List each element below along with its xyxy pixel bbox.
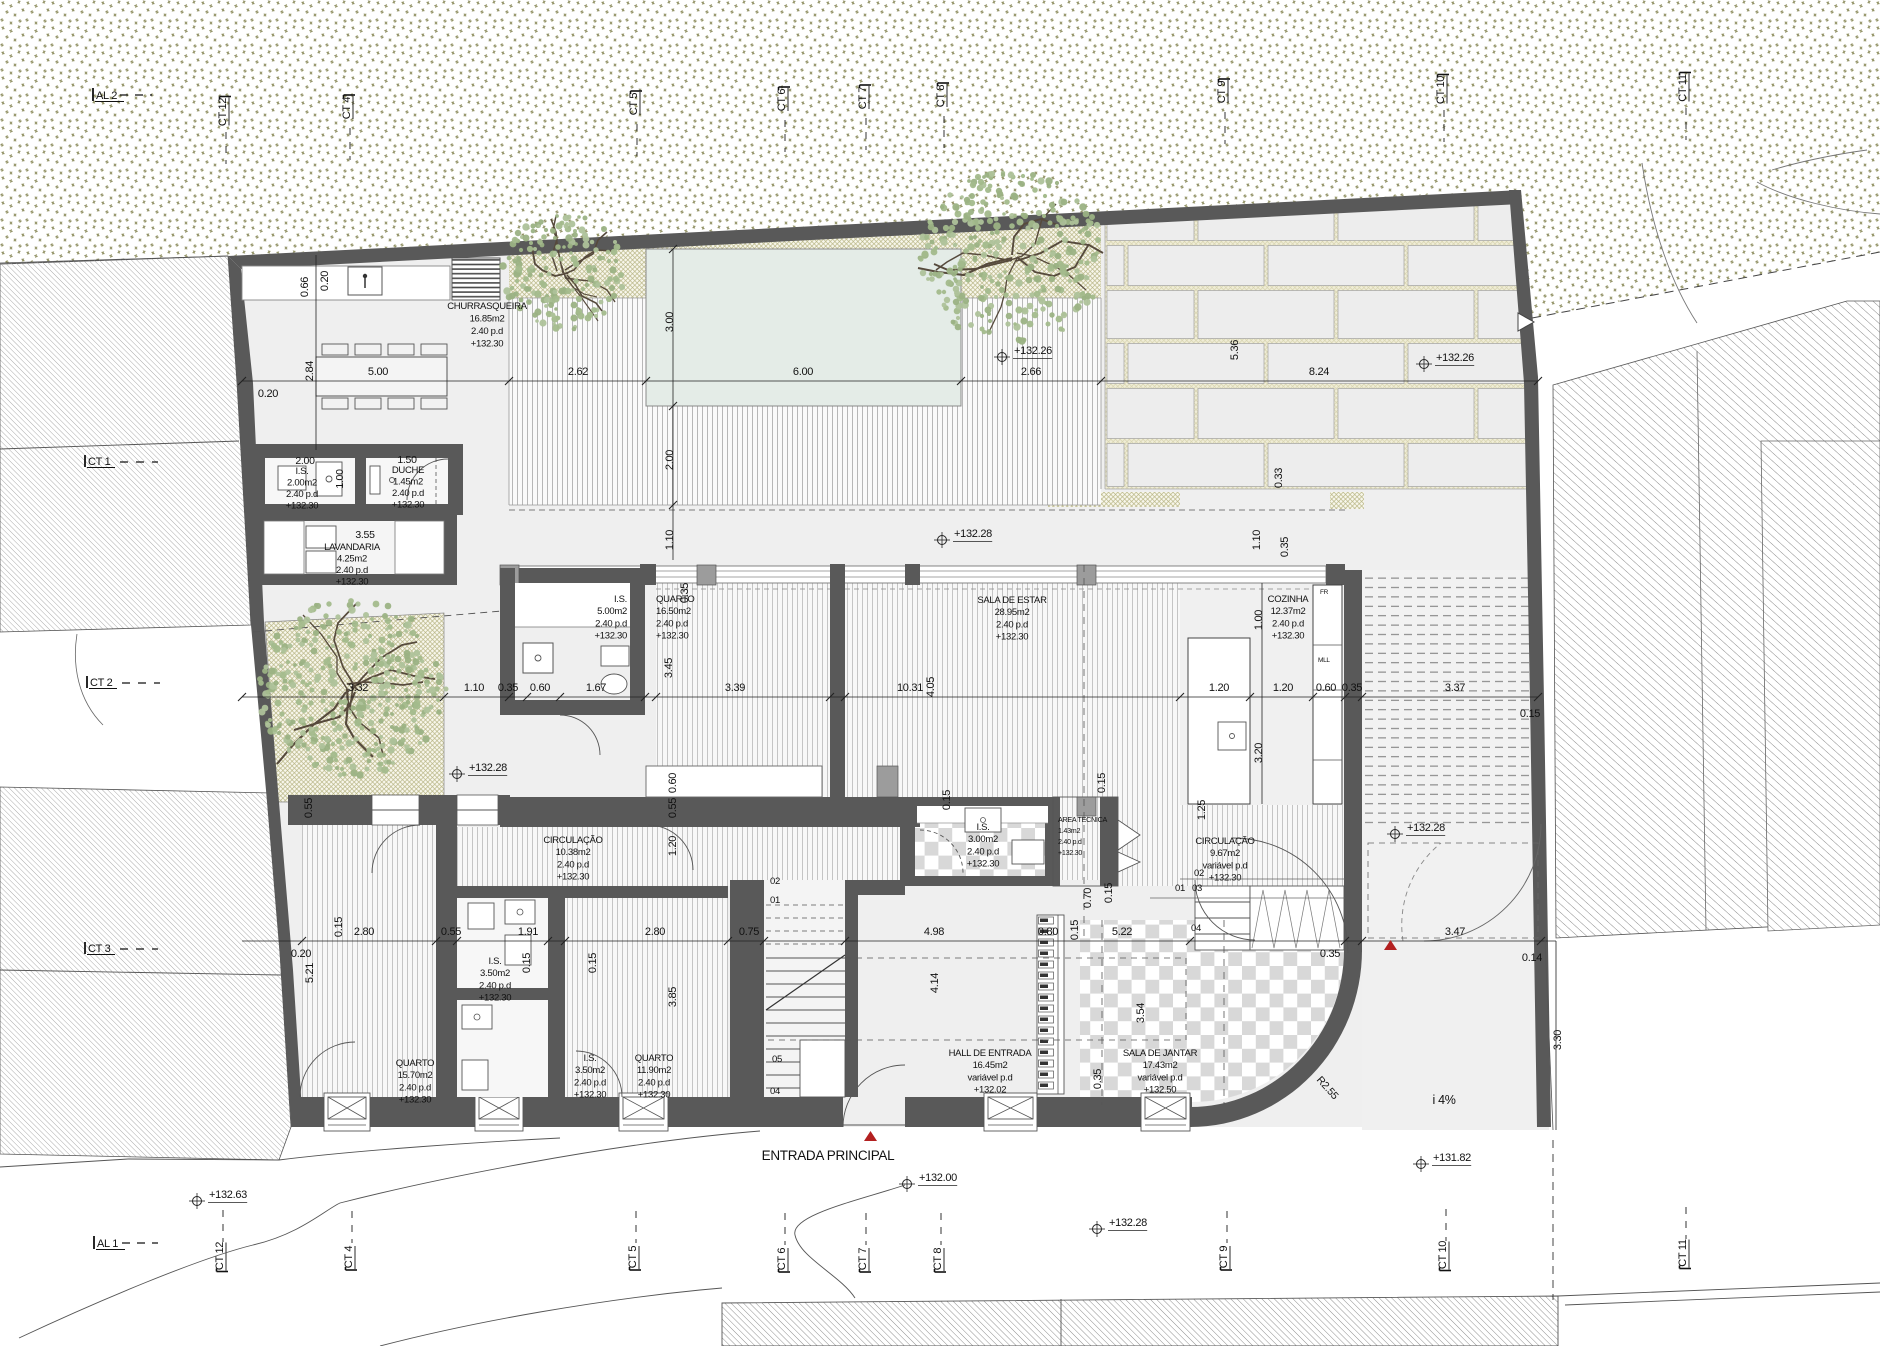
svg-text:+132.30: +132.30 xyxy=(638,1090,671,1101)
svg-text:2.40 p.d: 2.40 p.d xyxy=(286,489,318,500)
svg-text:CT 4: CT 4 xyxy=(341,97,353,120)
svg-text:CT 12: CT 12 xyxy=(217,98,229,126)
svg-text:QUARTO: QUARTO xyxy=(656,594,695,605)
svg-text:3.37: 3.37 xyxy=(1445,682,1465,694)
svg-text:5.22: 5.22 xyxy=(1112,926,1132,938)
svg-text:2.40 p.d: 2.40 p.d xyxy=(1058,837,1082,846)
svg-text:CT 9: CT 9 xyxy=(1216,81,1228,104)
svg-text:AREA TECNICA: AREA TECNICA xyxy=(1058,815,1107,824)
svg-text:1.00: 1.00 xyxy=(334,469,346,489)
svg-text:+132.30: +132.30 xyxy=(471,339,504,350)
svg-text:CT 11: CT 11 xyxy=(1677,74,1689,102)
svg-text:04: 04 xyxy=(770,1086,780,1097)
svg-text:2.40 p.d: 2.40 p.d xyxy=(638,1077,670,1088)
svg-text:+132.26: +132.26 xyxy=(1436,352,1474,364)
svg-text:2.40 p.d: 2.40 p.d xyxy=(996,619,1028,630)
svg-text:I.S.: I.S. xyxy=(295,466,308,477)
svg-text:0.60: 0.60 xyxy=(1316,682,1336,694)
svg-text:0.55: 0.55 xyxy=(303,798,315,818)
svg-text:LAVANDARIA: LAVANDARIA xyxy=(324,542,381,553)
svg-text:2.40 p.d: 2.40 p.d xyxy=(1272,618,1304,629)
svg-text:0.35: 0.35 xyxy=(1279,537,1291,557)
svg-text:CT 10: CT 10 xyxy=(1437,1241,1449,1269)
svg-text:2.84: 2.84 xyxy=(304,361,316,381)
svg-text:3.39: 3.39 xyxy=(725,682,745,694)
svg-text:+132.30: +132.30 xyxy=(594,631,627,642)
svg-text:3.50m2: 3.50m2 xyxy=(575,1065,605,1076)
svg-text:1.25: 1.25 xyxy=(1196,800,1208,820)
svg-text:1.00: 1.00 xyxy=(1253,610,1265,630)
svg-text:1.43m2: 1.43m2 xyxy=(1058,826,1080,835)
svg-text:16.50m2: 16.50m2 xyxy=(656,606,691,617)
svg-text:0.35: 0.35 xyxy=(1342,682,1362,694)
svg-text:2.00: 2.00 xyxy=(664,450,676,470)
svg-text:+132.50: +132.50 xyxy=(1144,1085,1177,1096)
svg-text:2.40 p.d: 2.40 p.d xyxy=(656,618,688,629)
svg-text:9.67m2: 9.67m2 xyxy=(1210,848,1240,859)
svg-text:+132.30: +132.30 xyxy=(286,501,319,512)
svg-text:4.25m2: 4.25m2 xyxy=(337,554,367,565)
svg-text:3.55: 3.55 xyxy=(355,529,375,541)
svg-text:+132.30: +132.30 xyxy=(479,993,512,1004)
svg-text:28.95m2: 28.95m2 xyxy=(995,607,1030,618)
svg-text:0.15: 0.15 xyxy=(1520,708,1540,720)
svg-text:1.10: 1.10 xyxy=(1251,530,1263,550)
svg-text:+132.30: +132.30 xyxy=(574,1090,607,1101)
svg-text:+132.02: +132.02 xyxy=(974,1085,1007,1096)
svg-text:0.33: 0.33 xyxy=(1273,468,1285,488)
svg-text:1.10: 1.10 xyxy=(464,682,484,694)
svg-text:CT 3: CT 3 xyxy=(88,943,111,955)
svg-text:CT 7: CT 7 xyxy=(857,87,869,110)
svg-text:COZINHA: COZINHA xyxy=(1268,594,1310,605)
svg-text:2.00m2: 2.00m2 xyxy=(287,478,317,489)
svg-text:2.40 p.d: 2.40 p.d xyxy=(336,565,368,576)
svg-text:+132.28: +132.28 xyxy=(469,762,507,774)
svg-text:5.00m2: 5.00m2 xyxy=(597,606,627,617)
svg-text:5.21: 5.21 xyxy=(304,963,316,983)
svg-text:0.75: 0.75 xyxy=(739,926,759,938)
svg-text:variável p.d: variável p.d xyxy=(1203,860,1248,871)
svg-text:+132.30: +132.30 xyxy=(1058,848,1082,857)
svg-text:2.40 p.d: 2.40 p.d xyxy=(399,1082,431,1093)
svg-text:01: 01 xyxy=(770,895,780,906)
svg-text:2.62: 2.62 xyxy=(568,366,588,378)
svg-text:CIRCULAÇÃO: CIRCULAÇÃO xyxy=(543,835,602,846)
svg-text:2.80: 2.80 xyxy=(354,926,374,938)
svg-text:17.43m2: 17.43m2 xyxy=(1143,1060,1178,1071)
svg-text:0.60: 0.60 xyxy=(667,773,679,793)
svg-text:CT 6: CT 6 xyxy=(776,89,788,112)
svg-text:2.40 p.d: 2.40 p.d xyxy=(392,488,424,499)
svg-text:+132.28: +132.28 xyxy=(954,528,992,540)
svg-text:0.35: 0.35 xyxy=(498,682,518,694)
svg-text:MLL: MLL xyxy=(1318,657,1330,664)
svg-text:03: 03 xyxy=(1192,883,1202,894)
svg-text:0.35: 0.35 xyxy=(1320,948,1340,960)
svg-text:CT 11: CT 11 xyxy=(1677,1239,1689,1267)
svg-text:variável p.d: variável p.d xyxy=(968,1072,1013,1083)
svg-text:+132.26: +132.26 xyxy=(1014,345,1052,357)
svg-text:3.32: 3.32 xyxy=(348,682,368,694)
svg-text:1.91: 1.91 xyxy=(518,926,538,938)
svg-text:0.60: 0.60 xyxy=(530,682,550,694)
svg-text:+132.30: +132.30 xyxy=(967,859,1000,870)
svg-text:0.15: 0.15 xyxy=(587,953,599,973)
svg-text:AL 2: AL 2 xyxy=(96,90,117,102)
svg-text:FR: FR xyxy=(1320,589,1329,596)
svg-text:10.31: 10.31 xyxy=(897,682,923,694)
svg-text:0.35: 0.35 xyxy=(1092,1069,1104,1089)
svg-text:16.85m2: 16.85m2 xyxy=(470,314,505,325)
svg-text:0.15: 0.15 xyxy=(1103,883,1115,903)
svg-text:CT 9: CT 9 xyxy=(1218,1246,1230,1269)
svg-text:0.66: 0.66 xyxy=(299,277,311,297)
svg-text:05: 05 xyxy=(772,1054,782,1065)
svg-text:4.98: 4.98 xyxy=(924,926,944,938)
svg-text:I.S.: I.S. xyxy=(488,956,501,967)
svg-text:8.24: 8.24 xyxy=(1309,366,1329,378)
svg-text:+132.30: +132.30 xyxy=(1209,873,1242,884)
svg-text:+132.30: +132.30 xyxy=(1272,631,1305,642)
svg-text:CT 10: CT 10 xyxy=(1435,76,1447,104)
svg-text:2.40 p.d: 2.40 p.d xyxy=(557,859,589,870)
svg-text:ENTRADA PRINCIPAL: ENTRADA PRINCIPAL xyxy=(762,1148,895,1163)
svg-text:I.S.: I.S. xyxy=(614,594,627,605)
svg-text:02: 02 xyxy=(770,876,780,887)
svg-text:+132.30: +132.30 xyxy=(996,632,1029,643)
svg-text:+132.28: +132.28 xyxy=(1407,822,1445,834)
svg-text:1.20: 1.20 xyxy=(1273,682,1293,694)
svg-text:1.20: 1.20 xyxy=(1209,682,1229,694)
svg-text:0.14: 0.14 xyxy=(1522,952,1542,964)
svg-text:+132.30: +132.30 xyxy=(656,631,689,642)
svg-text:02: 02 xyxy=(1194,868,1204,879)
svg-text:+132.30: +132.30 xyxy=(557,872,590,883)
svg-text:DUCHE: DUCHE xyxy=(392,465,424,476)
svg-text:0.55: 0.55 xyxy=(441,926,461,938)
svg-text:+132.30: +132.30 xyxy=(392,500,425,511)
svg-text:2.40 p.d: 2.40 p.d xyxy=(471,326,503,337)
svg-text:2.40 p.d: 2.40 p.d xyxy=(479,980,511,991)
svg-text:2.40 p.d: 2.40 p.d xyxy=(967,846,999,857)
svg-text:+132.28: +132.28 xyxy=(1109,1217,1147,1229)
svg-text:3.47: 3.47 xyxy=(1445,926,1465,938)
svg-text:0.15: 0.15 xyxy=(333,917,345,937)
svg-text:CT 2: CT 2 xyxy=(90,677,113,689)
svg-text:01: 01 xyxy=(1175,883,1185,894)
svg-text:QUARTO: QUARTO xyxy=(396,1058,435,1069)
svg-text:i 4%: i 4% xyxy=(1432,1093,1455,1107)
svg-text:3.85: 3.85 xyxy=(667,987,679,1007)
svg-text:0.15: 0.15 xyxy=(941,790,953,810)
svg-text:0.15: 0.15 xyxy=(521,953,533,973)
svg-text:CT 5: CT 5 xyxy=(628,93,640,116)
svg-text:0.70: 0.70 xyxy=(1082,888,1094,908)
svg-text:CT 8: CT 8 xyxy=(935,85,947,108)
svg-text:1.67: 1.67 xyxy=(586,682,606,694)
svg-text:CT 6: CT 6 xyxy=(776,1248,788,1271)
svg-text:CHURRASQUEIRA: CHURRASQUEIRA xyxy=(447,301,527,312)
svg-text:SALA DE ESTAR: SALA DE ESTAR xyxy=(977,595,1047,606)
svg-text:11.90m2: 11.90m2 xyxy=(637,1065,671,1076)
svg-text:+132.30: +132.30 xyxy=(336,577,369,588)
svg-text:2.80: 2.80 xyxy=(645,926,665,938)
svg-text:2.40 p.d: 2.40 p.d xyxy=(595,618,627,629)
svg-text:AL 1: AL 1 xyxy=(97,1238,118,1250)
svg-text:CT 8: CT 8 xyxy=(932,1248,944,1271)
svg-text:15.70m2: 15.70m2 xyxy=(398,1070,433,1081)
svg-text:1.10: 1.10 xyxy=(664,530,676,550)
svg-text:4.05: 4.05 xyxy=(925,677,937,697)
svg-text:6.00: 6.00 xyxy=(793,366,813,378)
svg-text:04: 04 xyxy=(1191,923,1201,934)
svg-text:3.54: 3.54 xyxy=(1135,1003,1147,1023)
svg-text:0.55: 0.55 xyxy=(667,798,679,818)
svg-text:0.20: 0.20 xyxy=(291,948,311,960)
svg-text:5.00: 5.00 xyxy=(368,366,388,378)
svg-text:CIRCULAÇÃO: CIRCULAÇÃO xyxy=(1195,836,1254,847)
svg-text:0.20: 0.20 xyxy=(258,388,278,400)
svg-text:12.37m2: 12.37m2 xyxy=(1271,606,1306,617)
svg-text:+132.63: +132.63 xyxy=(209,1189,247,1201)
svg-text:+132.00: +132.00 xyxy=(919,1172,957,1184)
svg-text:5.36: 5.36 xyxy=(1229,340,1241,360)
svg-text:0.20: 0.20 xyxy=(319,271,331,291)
svg-text:2.66: 2.66 xyxy=(1021,366,1041,378)
svg-text:CT 1: CT 1 xyxy=(88,456,111,468)
svg-text:CT 5: CT 5 xyxy=(627,1246,639,1269)
svg-text:+132.30: +132.30 xyxy=(399,1095,432,1106)
svg-text:variável p.d: variável p.d xyxy=(1138,1072,1183,1083)
svg-text:0.15: 0.15 xyxy=(1069,920,1081,940)
svg-text:I.S.: I.S. xyxy=(583,1053,596,1064)
svg-text:3.00m2: 3.00m2 xyxy=(968,834,998,845)
svg-text:QUARTO: QUARTO xyxy=(635,1053,674,1064)
svg-text:CT 7: CT 7 xyxy=(857,1248,869,1271)
svg-text:+131.82: +131.82 xyxy=(1433,1152,1471,1164)
svg-text:HALL DE ENTRADA: HALL DE ENTRADA xyxy=(949,1048,1033,1059)
svg-text:3.20: 3.20 xyxy=(1253,743,1265,763)
svg-text:2.40 p.d: 2.40 p.d xyxy=(574,1077,606,1088)
svg-text:0.80: 0.80 xyxy=(1038,926,1058,938)
svg-text:1.20: 1.20 xyxy=(667,836,679,856)
svg-text:SALA DE JANTAR: SALA DE JANTAR xyxy=(1123,1048,1198,1059)
svg-text:I.S.: I.S. xyxy=(976,822,989,833)
svg-text:CT 4: CT 4 xyxy=(343,1246,355,1269)
svg-text:0.15: 0.15 xyxy=(1096,773,1108,793)
svg-text:3.30: 3.30 xyxy=(1552,1030,1564,1050)
svg-text:3.00: 3.00 xyxy=(664,312,676,332)
svg-text:3.50m2: 3.50m2 xyxy=(480,968,510,979)
svg-text:10.38m2: 10.38m2 xyxy=(556,847,591,858)
svg-text:1.45m2: 1.45m2 xyxy=(393,477,423,488)
svg-text:16.45m2: 16.45m2 xyxy=(973,1060,1008,1071)
svg-text:3.45: 3.45 xyxy=(663,658,675,678)
svg-text:4.14: 4.14 xyxy=(929,973,941,993)
